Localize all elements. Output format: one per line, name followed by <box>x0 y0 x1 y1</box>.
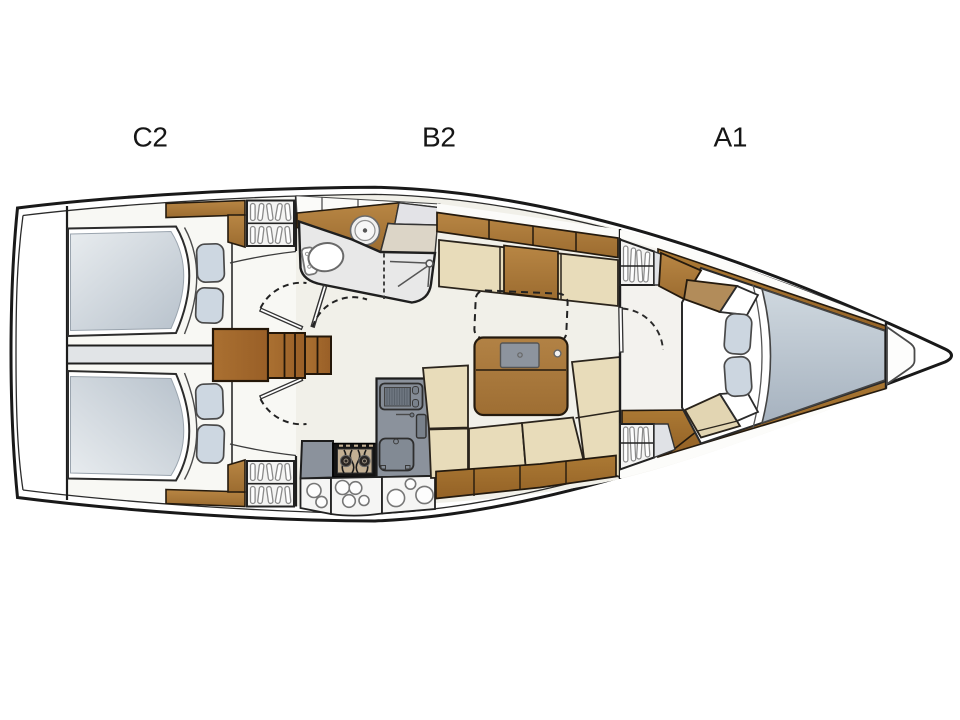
svg-text:C2: C2 <box>133 122 168 153</box>
svg-text:A1: A1 <box>714 122 748 153</box>
svg-text:B2: B2 <box>422 122 456 153</box>
